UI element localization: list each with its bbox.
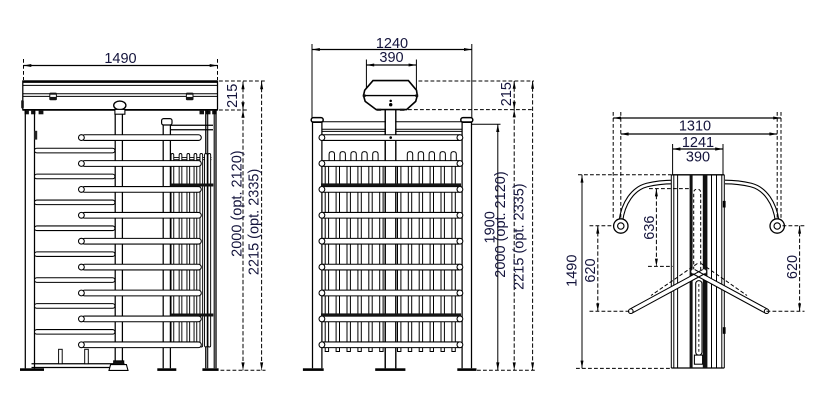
svg-text:1490: 1490 [565,255,581,287]
svg-text:2000 (opt. 2120): 2000 (opt. 2120) [230,150,246,256]
svg-text:620: 620 [785,255,801,279]
svg-text:2215 (opt. 2335): 2215 (opt. 2335) [247,169,263,275]
svg-text:636: 636 [642,215,658,239]
svg-text:390: 390 [379,50,403,66]
svg-text:620: 620 [583,258,599,282]
svg-text:1310: 1310 [679,118,711,134]
svg-text:215: 215 [225,84,241,108]
svg-text:1490: 1490 [104,51,136,67]
svg-text:390: 390 [686,149,710,165]
svg-text:2215 (opt. 2335): 2215 (opt. 2335) [511,183,527,289]
svg-text:215: 215 [499,82,515,106]
svg-text:2000 (opt. 2120): 2000 (opt. 2120) [493,171,509,277]
